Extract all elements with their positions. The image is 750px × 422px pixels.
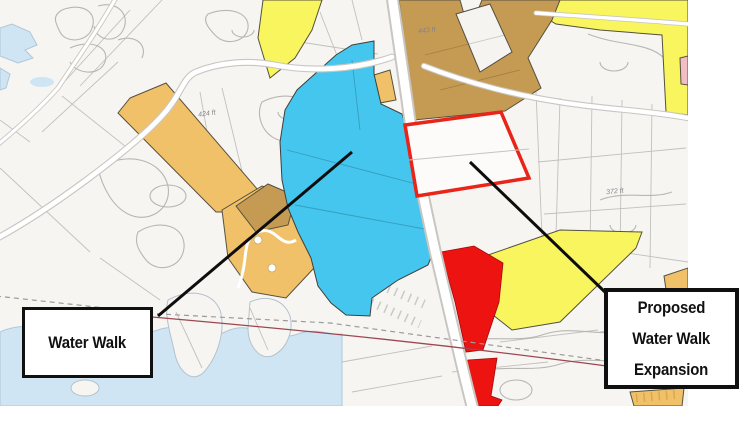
proposed-expansion-line3: Expansion [634,354,708,385]
water-walk-callout-label: Water Walk [49,333,127,353]
water-walk-callout: Water Walk [22,307,153,378]
proposed-expansion-line1: Proposed [638,292,706,323]
proposed-expansion-callout: Proposed Water Walk Expansion [604,288,739,389]
zone-pink-sliver [680,56,688,85]
proposed-expansion-line2: Water Walk [633,323,711,354]
